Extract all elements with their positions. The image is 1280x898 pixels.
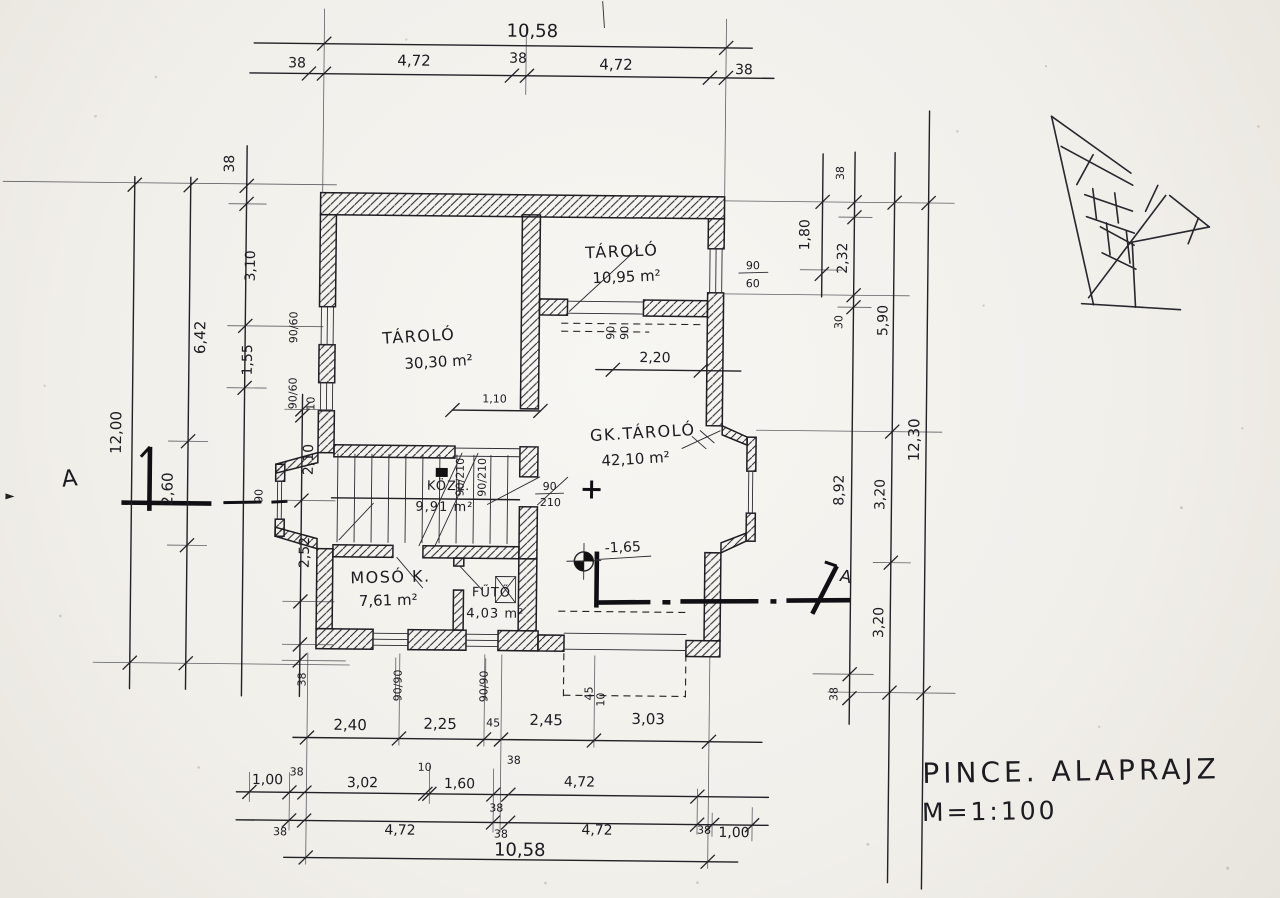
dim-bot3-1: 4,72	[384, 822, 415, 838]
room-laundry-name: MOSÓ K.	[350, 566, 431, 587]
dim-top-0: 38	[288, 55, 306, 71]
dim-bot2-4: 1,60	[444, 776, 475, 792]
dim-left-inner2-2: 2,52	[297, 537, 313, 568]
dim-top-4: 38	[735, 62, 753, 78]
dim-right-320b: 3,20	[871, 607, 887, 638]
dim-right-320a: 3,20	[872, 479, 888, 510]
dim-left-mid-0: 6,42	[191, 321, 209, 355]
room-boiler-area: 4,03 m²	[466, 606, 524, 622]
dim-bot2-3: 10	[418, 761, 432, 774]
dim-bot3-5: 1,00	[718, 825, 749, 841]
room-storage-top-name: TÁROLÓ	[584, 240, 659, 262]
dim-inner-110: 1,10	[482, 392, 507, 405]
win-left-upper: 90/60	[287, 311, 300, 343]
drawing-scale: M=1:100	[922, 796, 1058, 827]
dim-bot1-2: 45	[486, 716, 500, 729]
drawing-title: PINCE. ALAPRAJZ	[922, 752, 1220, 790]
room-gk-storage-name: GK.TÁROLÓ	[590, 420, 697, 445]
section-label-right: A	[838, 566, 854, 588]
dim-right-180: 1,80	[797, 219, 813, 250]
dim-top-2: 38	[509, 51, 527, 67]
win-right-width: 90	[746, 259, 760, 272]
dim-left-mid-1: 2,60	[158, 472, 176, 506]
dim-bot3-4: 38	[697, 824, 711, 837]
dim-top-total: 10,58	[507, 21, 559, 43]
level-value: -1,65	[604, 539, 641, 557]
dim-right-232: 2,32	[835, 242, 851, 273]
dim-right-30: 30	[832, 315, 845, 329]
win-bottom-2: 90/90	[477, 670, 490, 702]
dim-left-inner-2: 1,55	[240, 344, 256, 375]
room-boiler-name: FŰTŐ	[472, 584, 511, 600]
dim-inner-220: 2,20	[639, 350, 670, 366]
dim-bot1-0: 2,40	[333, 716, 367, 734]
section-label-left: A	[61, 465, 79, 492]
door-rot-2: 90/210	[476, 458, 489, 497]
room-gk-storage-area: 42,10 m²	[601, 448, 670, 470]
room-storage-main-name: TÁROLÓ	[381, 325, 456, 348]
dim-right-outer: 12,30	[905, 418, 923, 461]
garage-ramp-dashed	[557, 611, 686, 698]
dim-bot1-3: 2,45	[529, 711, 563, 729]
dim-left-inner2-3: 38	[296, 672, 309, 686]
dim-bot2-5: 38	[489, 801, 503, 814]
dim-bot3-0: 38	[273, 825, 287, 838]
corner-sketch	[1050, 116, 1211, 310]
dimension-labels: 10,58 38 4,72 38 4,72 38 12,00 6,42 2,60…	[103, 16, 928, 864]
dim-bot2-0: 1,00	[252, 772, 283, 788]
win-top-b: 90	[618, 326, 631, 340]
dim-bot2-1: 38	[290, 765, 304, 778]
dim-right-38-top: 38	[834, 166, 847, 180]
dim-bot1-38: 38	[507, 754, 521, 767]
room-hall-area: 9,91 m²	[415, 500, 473, 516]
win-bay: 90	[252, 489, 265, 503]
dim-left-inner2-0: 10	[304, 396, 317, 410]
win-right-height: 60	[746, 277, 760, 290]
title-block: PINCE. ALAPRAJZ M=1:100	[921, 749, 1220, 830]
room-laundry-area: 7,61 m²	[359, 591, 418, 610]
level-marker	[567, 480, 652, 580]
dim-right-590: 5,90	[875, 305, 891, 336]
dim-bot2-6: 4,72	[564, 774, 595, 790]
win-top-a: 90	[604, 326, 617, 340]
dim-left-inner-1: 3,10	[243, 250, 259, 281]
dim-bot3-3: 4,72	[581, 822, 612, 838]
dim-left-inner2-1: 2,10	[301, 444, 317, 475]
dim-top-1: 4,72	[397, 51, 431, 69]
dim-left-outer: 12,00	[107, 411, 125, 454]
win-left-lower: 90/60	[286, 377, 299, 409]
dim-bot1-1: 2,25	[423, 715, 457, 733]
door-rot-1: 90/210	[454, 458, 467, 497]
room-storage-top-area: 10,95 m²	[592, 266, 661, 287]
dim-bottom-total: 10,58	[494, 839, 546, 861]
dim-right-38-bot: 38	[827, 687, 840, 701]
dim-left-inner-0: 38	[222, 155, 238, 173]
dim-right-892: 8,92	[831, 474, 847, 505]
basement-floorplan-drawing: A A -1,65 TÁROLÓ 30,30 m² TÁROLÓ 10,95 m…	[0, 0, 1280, 898]
dim-bot1-4: 3,03	[631, 710, 665, 728]
win-bottom-1: 90/90	[391, 670, 404, 702]
small-10: 10	[594, 693, 607, 707]
door-gk-width: 90	[543, 480, 557, 493]
door-gk-height: 210	[540, 496, 561, 509]
dim-top-3: 4,72	[599, 56, 633, 74]
room-storage-main-area: 30,30 m²	[404, 351, 473, 373]
dim-bot2-2: 3,02	[347, 775, 378, 791]
